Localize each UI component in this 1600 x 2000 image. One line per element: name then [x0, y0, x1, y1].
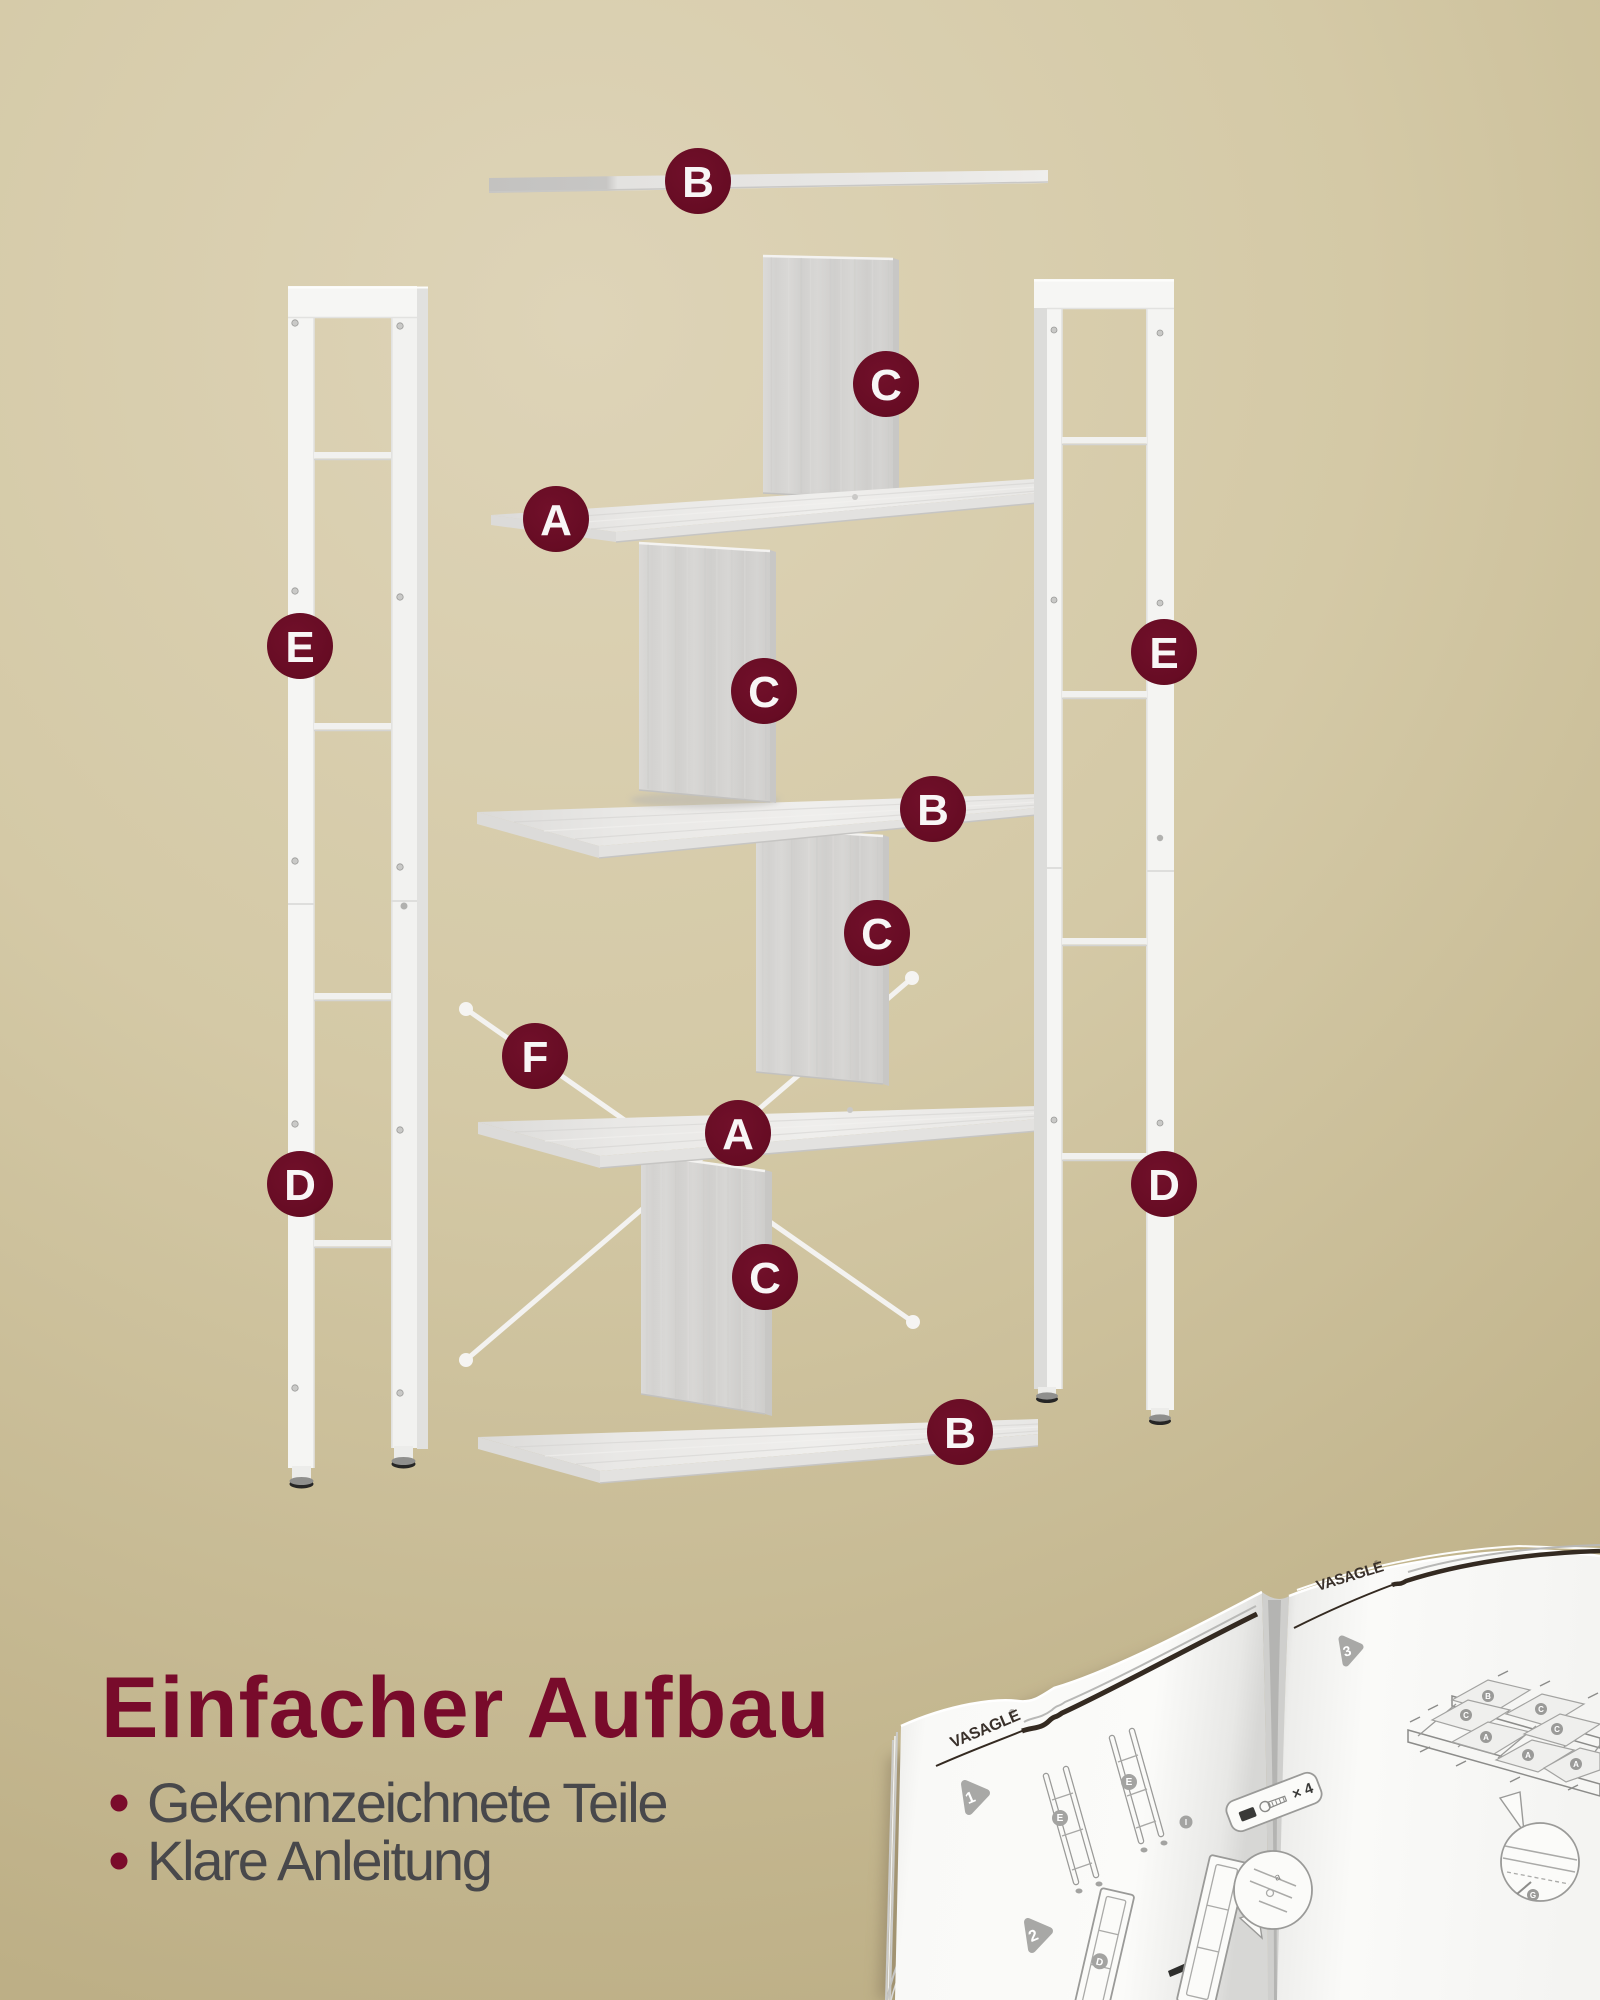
svg-text:E: E [1126, 1777, 1133, 1788]
svg-text:C: C [749, 1254, 781, 1303]
svg-text:C: C [748, 668, 780, 717]
svg-text:Einfacher Aufbau: Einfacher Aufbau [101, 1660, 831, 1756]
svg-text:G: G [1530, 1891, 1536, 1900]
svg-text:C: C [1554, 1725, 1560, 1734]
svg-text:F: F [522, 1033, 549, 1082]
svg-text:E: E [1149, 629, 1178, 678]
svg-text:B: B [944, 1409, 976, 1458]
svg-text:C: C [870, 361, 902, 410]
svg-text:B: B [917, 786, 949, 835]
svg-text:C: C [861, 910, 893, 959]
svg-text:D: D [1148, 1161, 1180, 1210]
svg-text:E: E [285, 623, 314, 672]
svg-text:E: E [1057, 1813, 1064, 1824]
svg-text:A: A [540, 496, 572, 545]
svg-text:A: A [1483, 1733, 1489, 1742]
svg-text:B: B [1485, 1692, 1491, 1701]
svg-text:C: C [1463, 1711, 1469, 1720]
svg-text:Klare Anleitung: Klare Anleitung [147, 1829, 491, 1892]
svg-text:Gekennzeichnete Teile: Gekennzeichnete Teile [147, 1771, 666, 1834]
svg-text:C: C [1538, 1705, 1544, 1714]
svg-text:A: A [722, 1110, 754, 1159]
svg-text:A: A [1573, 1760, 1579, 1769]
svg-text:D: D [284, 1161, 316, 1210]
svg-text:B: B [682, 158, 714, 207]
svg-text:A: A [1525, 1751, 1531, 1760]
svg-text:I: I [1185, 1818, 1187, 1827]
